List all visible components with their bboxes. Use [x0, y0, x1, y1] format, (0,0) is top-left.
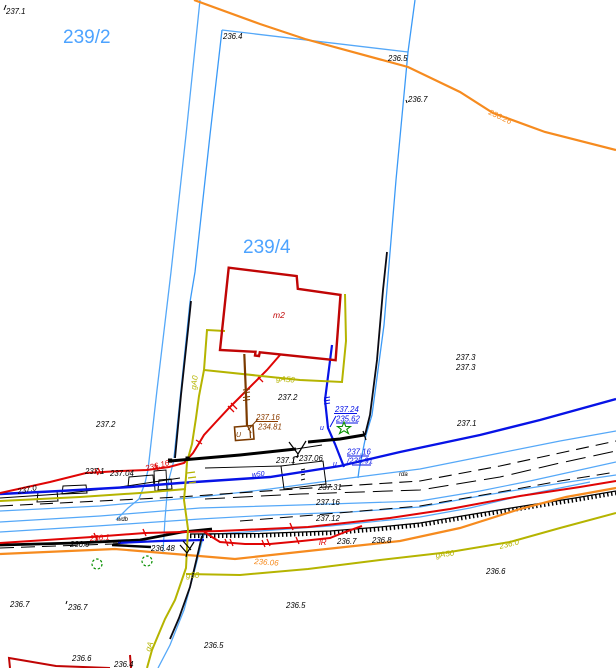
svg-text:lR: lR — [319, 538, 327, 547]
svg-text:wb: wb — [113, 540, 121, 546]
svg-text:236.7: 236.7 — [336, 537, 357, 546]
svg-text:236.06: 236.06 — [253, 557, 280, 568]
svg-text:237.2: 237.2 — [95, 420, 116, 429]
svg-text:237.3: 237.3 — [455, 353, 476, 362]
svg-text:236.7: 236.7 — [67, 603, 88, 612]
svg-text:236.7: 236.7 — [9, 600, 30, 609]
svg-text:237.16: 237.16 — [346, 448, 372, 457]
svg-text:236.5: 236.5 — [285, 601, 306, 610]
svg-text:234.81: 234.81 — [257, 423, 282, 432]
svg-text:m2: m2 — [273, 310, 285, 320]
svg-text:237.12: 237.12 — [315, 514, 341, 523]
svg-text:236.48: 236.48 — [150, 544, 176, 553]
svg-text:237.04: 237.04 — [109, 469, 135, 478]
svg-text:gA50: gA50 — [276, 374, 296, 385]
svg-text:gA0: gA0 — [189, 374, 200, 390]
svg-text:236.7: 236.7 — [407, 95, 428, 104]
svg-text:236.4: 236.4 — [113, 660, 134, 668]
svg-text:236.1: 236.1 — [89, 533, 111, 543]
svg-text:rda: rda — [399, 472, 408, 478]
svg-text:237.06: 237.06 — [298, 454, 324, 463]
svg-text:u: u — [320, 425, 324, 432]
svg-text:236.5: 236.5 — [203, 641, 224, 650]
svg-text:237.16: 237.16 — [315, 498, 341, 507]
svg-text:w50: w50 — [251, 471, 265, 479]
svg-text:237.1: 237.1 — [5, 7, 26, 16]
svg-text:237.1: 237.1 — [84, 467, 105, 476]
svg-text:237.16: 237.16 — [255, 413, 281, 422]
svg-text:g50: g50 — [186, 571, 200, 580]
svg-text:235.62: 235.62 — [335, 415, 361, 424]
svg-text:239/2: 239/2 — [63, 27, 111, 48]
svg-text:237.31: 237.31 — [317, 483, 342, 492]
svg-text:wdb: wdb — [117, 517, 129, 523]
svg-text:236.6: 236.6 — [71, 654, 92, 663]
svg-text:u: u — [333, 461, 337, 468]
svg-text:237.1: 237.1 — [275, 456, 296, 465]
svg-text:237.2: 237.2 — [277, 393, 298, 402]
svg-text:236.9: 236.9 — [69, 540, 90, 549]
svg-text:/235.91: /235.91 — [346, 457, 373, 466]
svg-text:237.1: 237.1 — [456, 419, 477, 428]
svg-text:237.3: 237.3 — [455, 363, 476, 372]
svg-text:237.24: 237.24 — [334, 405, 360, 414]
svg-text:236.4: 236.4 — [222, 32, 243, 41]
svg-text:236.5: 236.5 — [387, 54, 408, 63]
svg-text:239/4: 239/4 — [243, 237, 291, 258]
svg-text:236.8: 236.8 — [371, 536, 392, 545]
svg-text:236.6: 236.6 — [485, 567, 506, 576]
